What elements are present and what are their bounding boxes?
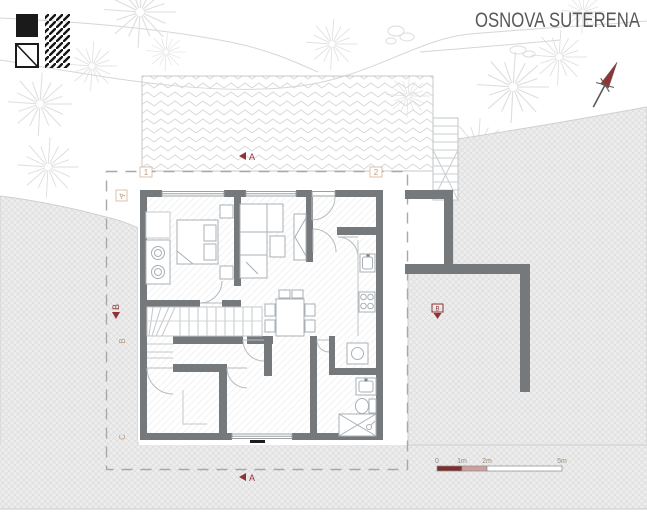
tree-icon [477,52,549,123]
svg-text:1: 1 [144,168,149,177]
tree-icon [8,73,73,137]
svg-text:B: B [111,304,121,310]
nightstand [220,266,233,279]
tree-icon [146,33,186,72]
chair [279,290,290,298]
shower [339,414,376,436]
grid-label-1: 1 [140,167,152,177]
legend-hatch-swatch-icon [45,14,70,68]
floor-plan [138,188,385,443]
bed [177,220,218,264]
grid-label-b: B [118,338,127,343]
chair [265,304,275,316]
svg-text:B: B [435,307,439,313]
grid-label-2: 2 [370,167,382,177]
exterior-stairs [433,118,458,200]
svg-text:2m: 2m [482,458,492,465]
tree-icon [306,19,358,70]
coffee-table [270,236,285,257]
tree-icon [17,137,78,197]
svg-text:1m: 1m [457,458,467,465]
svg-text:B: B [118,338,127,343]
legend-solid-square-icon [16,14,38,37]
dining-table [276,299,304,336]
chair [265,320,275,332]
grid-label-c: C [118,434,127,440]
svg-text:A: A [249,152,255,162]
stove [359,292,375,312]
tree-icon [104,0,176,48]
svg-text:2: 2 [374,168,379,177]
tree-icon [531,30,587,85]
svg-text:0: 0 [435,458,439,465]
svg-text:A: A [249,473,255,483]
boiler [347,343,368,364]
chair [305,304,315,316]
drawing-sheet: 1 2 A B C A A B B [0,0,647,516]
tv-unit [294,214,306,260]
site-plan-canvas: 1 2 A B C A A B B [0,0,647,516]
page-title: OSNOVA SUTERENA [475,9,640,32]
washer-dryer [146,212,170,284]
nightstand [220,205,233,218]
north-arrow-icon [585,58,625,111]
kitchen-sink [360,254,375,272]
tree-icon [67,42,117,92]
legend-diagonal-square-icon [16,44,38,67]
chair [292,290,303,298]
terrace-roof [142,76,433,171]
legend [16,14,70,68]
toilet [356,399,377,414]
grid-label-a: A [116,190,127,201]
chair [305,320,315,332]
svg-text:5m: 5m [557,458,567,465]
svg-text:C: C [118,434,127,440]
bathroom-sink [356,378,376,395]
